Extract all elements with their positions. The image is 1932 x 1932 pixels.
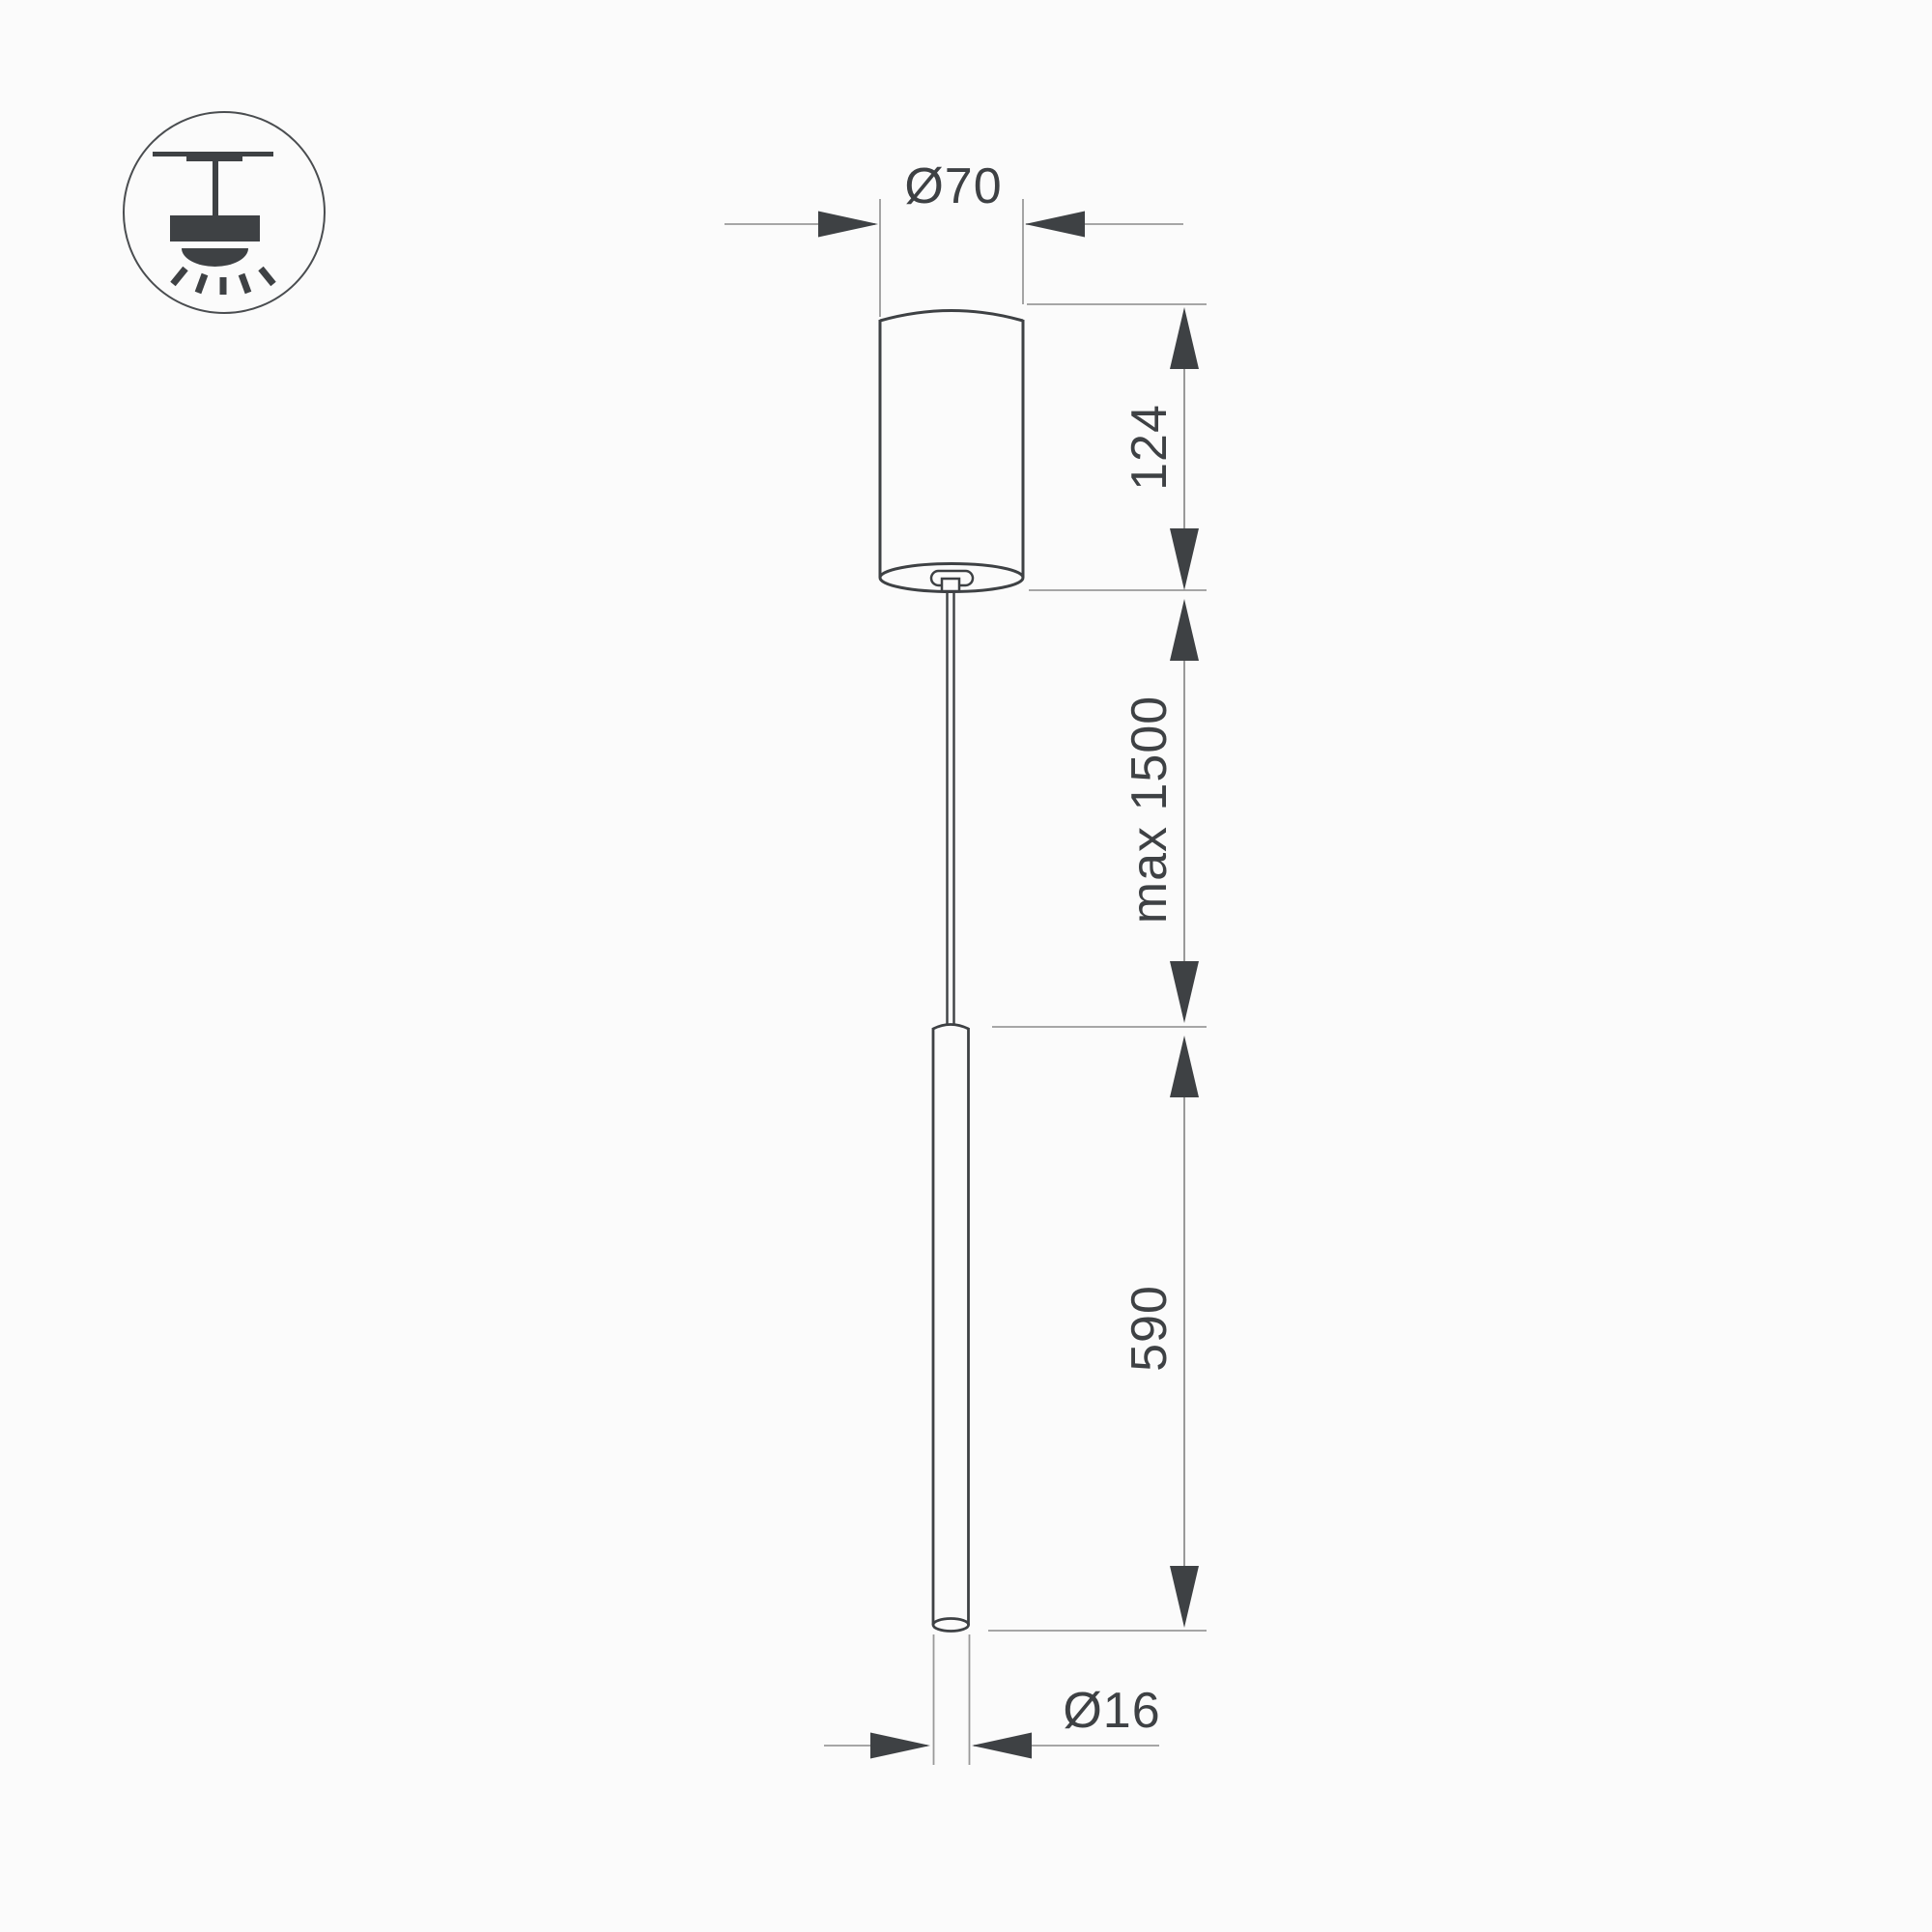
tube-top-edge <box>933 1025 969 1030</box>
arrow-up-icon <box>1170 307 1199 369</box>
dim-label-canopy-height: 124 <box>1124 404 1175 491</box>
arrow-down-icon <box>1170 961 1199 1023</box>
canopy <box>880 311 1023 592</box>
arrow-left-icon <box>1025 212 1085 238</box>
arrow-right-icon <box>870 1733 930 1759</box>
tube-bottom-ellipse <box>933 1619 969 1632</box>
pendant-lamp-drawing <box>0 0 1932 1932</box>
arrow-down-icon <box>1170 1566 1199 1628</box>
arrow-down-icon <box>1170 528 1199 590</box>
technical-drawing-canvas: Ø70 124 max 1500 590 Ø16 <box>0 0 1932 1932</box>
icon-light-rays <box>173 269 273 295</box>
arrow-up-icon <box>1170 599 1199 661</box>
canopy-wire-stub <box>942 579 959 591</box>
icon-stem <box>213 161 218 215</box>
light-tube <box>933 1025 969 1632</box>
icon-lamp-dome <box>182 248 248 267</box>
arrow-left-icon <box>972 1733 1032 1759</box>
canopy-top-edge <box>880 311 1023 322</box>
icon-lamp-body <box>170 215 260 241</box>
dim-label-suspension-length: max 1500 <box>1124 696 1175 923</box>
arrow-right-icon <box>818 212 878 238</box>
dim-label-canopy-diameter: Ø70 <box>904 161 1002 212</box>
icon-mount-plate <box>186 152 242 161</box>
suspension-wire <box>948 591 954 1024</box>
arrow-up-icon <box>1170 1036 1199 1097</box>
dim-label-tube-length: 590 <box>1124 1285 1175 1372</box>
dim-label-tube-diameter: Ø16 <box>1063 1686 1160 1736</box>
ceiling-mount-icon <box>124 112 325 313</box>
dim-canopy-diameter <box>724 199 1183 317</box>
